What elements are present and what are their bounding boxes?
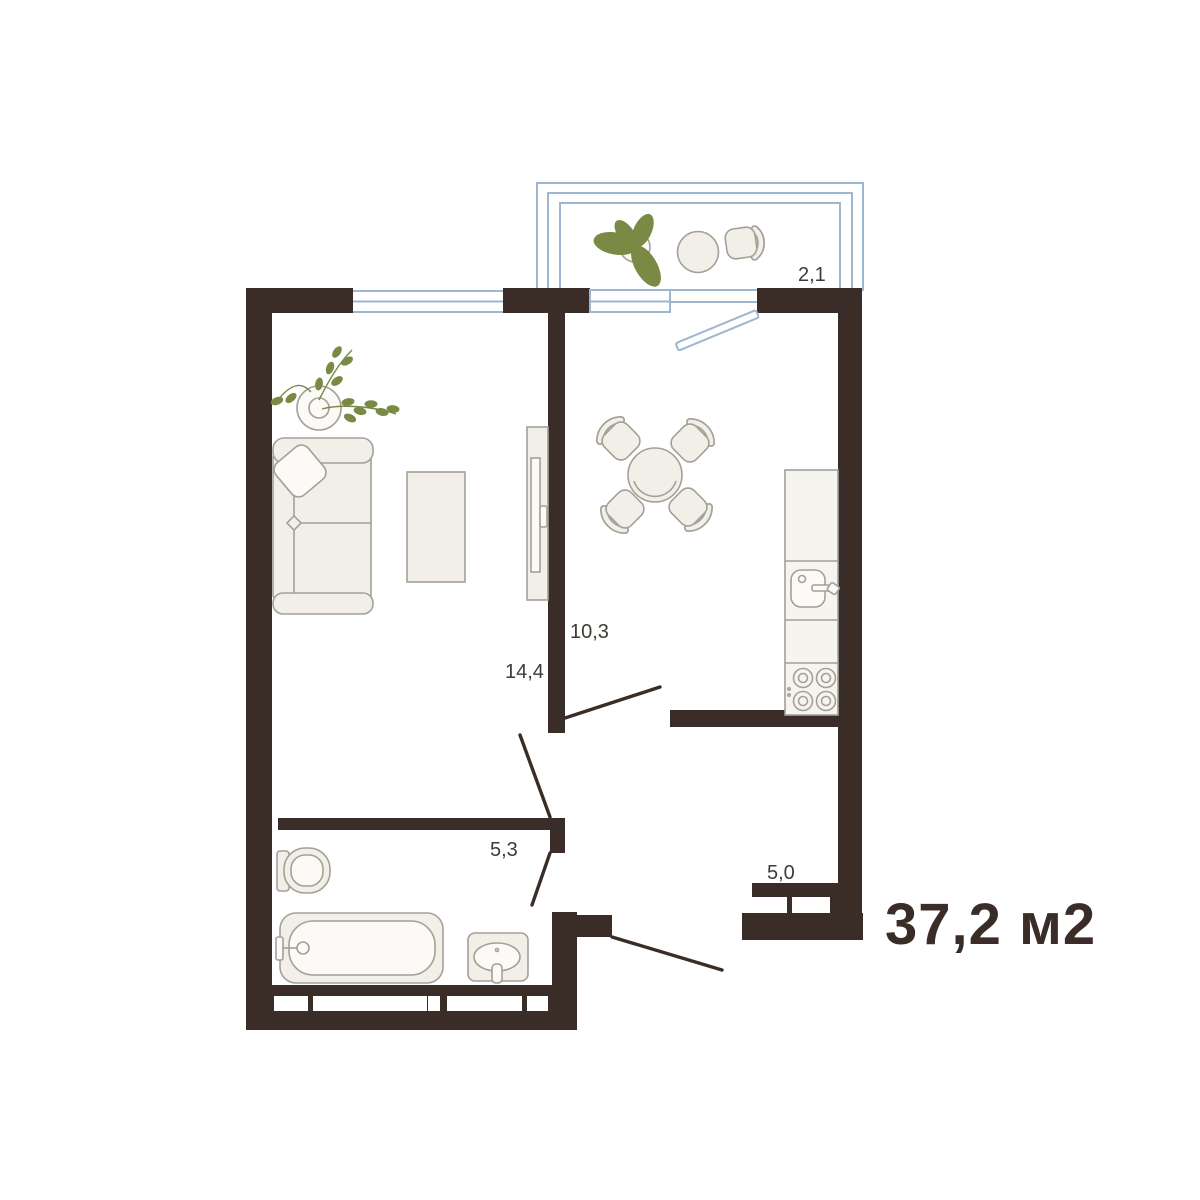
- hallway-area-label: 5,0: [767, 862, 795, 884]
- washbasin-faucet: [492, 964, 502, 983]
- wall-right: [838, 288, 862, 940]
- floor-plan: 14,4 10,3 5,3 5,0 2,1 37,2 м2: [0, 0, 1200, 1200]
- living-room-area-label: 14,4: [505, 661, 544, 683]
- dining-table: [628, 448, 682, 502]
- wall-left: [246, 288, 272, 1030]
- kitchen: [598, 418, 840, 715]
- balcony-area-label: 2,1: [798, 264, 826, 286]
- bathroom-door: [532, 853, 550, 905]
- living-room-door: [520, 735, 550, 817]
- coffee-table: [407, 472, 465, 582]
- kitchen-counter: [785, 470, 840, 715]
- tv-bracket: [540, 506, 547, 527]
- bathroom-area-label: 5,3: [490, 839, 518, 861]
- total-area-label: 37,2 м2: [885, 892, 1096, 957]
- wall-top-left: [246, 288, 353, 313]
- wall-bathroom-top: [278, 818, 565, 830]
- tv-screen: [531, 458, 540, 572]
- bathtub: [276, 913, 443, 983]
- wall-entry-stub-horizontal: [577, 915, 612, 937]
- kitchen-area-label: 10,3: [570, 621, 609, 643]
- sofa: [270, 438, 373, 614]
- bathtub-faucet: [297, 942, 309, 954]
- entry-door: [612, 937, 722, 970]
- living-room-plant: [270, 344, 400, 430]
- living-room: [270, 344, 548, 614]
- balcony-table: [678, 232, 719, 273]
- wall-bottom-slots: [274, 996, 548, 1011]
- dining-set: [598, 418, 712, 531]
- living-room-window: [353, 291, 503, 312]
- balcony-plant: [592, 211, 667, 292]
- floor-plan-drawing: 14,4 10,3 5,3 5,0 2,1 37,2 м2: [0, 0, 1200, 1200]
- wall-top-middle: [503, 288, 590, 313]
- wall-living-kitchen: [548, 313, 565, 733]
- wall-bathroom-stub: [550, 818, 565, 853]
- balcony-door-leaf: [675, 310, 758, 351]
- kitchen-door: [565, 687, 660, 718]
- tv-unit: [527, 427, 548, 600]
- balcony-chair: [724, 226, 761, 260]
- washbasin: [468, 933, 528, 983]
- bathroom: [276, 848, 528, 983]
- toilet: [277, 848, 330, 893]
- balcony-window: [590, 290, 670, 312]
